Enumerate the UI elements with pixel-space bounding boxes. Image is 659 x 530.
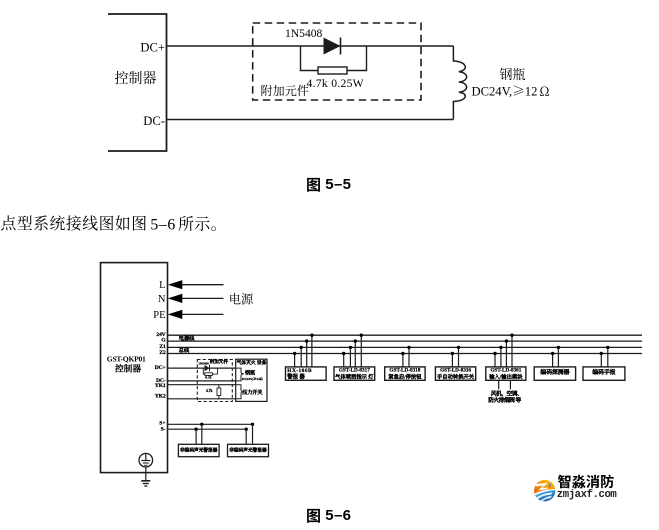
svg-text:YK2: YK2 bbox=[155, 390, 166, 399]
svg-text:DC24V,≥12Ω: DC24V,≥12Ω bbox=[472, 80, 550, 99]
svg-text:控制器: 控制器 bbox=[114, 362, 141, 374]
svg-text:附加元件: 附加元件 bbox=[210, 358, 229, 365]
svg-text:YK1: YK1 bbox=[155, 380, 166, 389]
svg-text:DC+: DC+ bbox=[155, 362, 166, 371]
svg-text:图: 图 bbox=[306, 505, 321, 526]
svg-text:非编码声光警报器: 非编码声光警报器 bbox=[229, 447, 267, 454]
svg-text:DC+: DC+ bbox=[140, 37, 165, 56]
svg-text:附加元件: 附加元件 bbox=[261, 82, 309, 99]
svg-text:紧急启/停按钮: 紧急启/停按钮 bbox=[388, 373, 422, 381]
svg-text:防火排烟阀 等: 防火排烟阀 等 bbox=[488, 395, 521, 404]
svg-text:手自动转换开关: 手自动转换开关 bbox=[437, 373, 475, 381]
svg-text:DC-: DC- bbox=[143, 110, 165, 129]
svg-text:1N5408: 1N5408 bbox=[285, 25, 323, 41]
svg-text:DC24V,≥12Ω: DC24V,≥12Ω bbox=[242, 376, 263, 381]
svg-text:4.7k: 4.7k bbox=[206, 389, 213, 394]
svg-text:编码探测器: 编码探测器 bbox=[539, 367, 569, 376]
svg-text:1N5408: 1N5408 bbox=[198, 361, 209, 366]
svg-text:电源: 电源 bbox=[229, 289, 254, 307]
svg-text:4.7k: 4.7k bbox=[205, 375, 212, 380]
svg-text:气体喷洒指示 灯: 气体喷洒指示 灯 bbox=[335, 373, 374, 381]
svg-text:N: N bbox=[158, 291, 166, 306]
svg-text:气体灭火 设备: 气体灭火 设备 bbox=[237, 359, 267, 366]
svg-text:5–5: 5–5 bbox=[325, 176, 351, 193]
svg-text:输入/输出模块: 输入/输出模块 bbox=[488, 373, 523, 381]
svg-text:电源线: 电源线 bbox=[179, 334, 195, 342]
svg-text:5–6: 5–6 bbox=[325, 507, 351, 524]
svg-text:警报 器: 警报 器 bbox=[287, 373, 305, 381]
svg-text:非编码声光警报器: 非编码声光警报器 bbox=[180, 447, 218, 454]
svg-text:4.7k0.25W: 4.7k0.25W bbox=[307, 75, 364, 91]
svg-text:zmjaxf.com: zmjaxf.com bbox=[557, 489, 617, 501]
svg-text:控制器: 控制器 bbox=[115, 68, 157, 88]
svg-text:点型系统接线图如图5–6所示。: 点型系统接线图如图5–6所示。 bbox=[1, 211, 228, 234]
svg-text:压力开关: 压力开关 bbox=[242, 389, 262, 396]
svg-text:PE: PE bbox=[153, 307, 165, 322]
svg-text:编码手报: 编码手报 bbox=[591, 367, 615, 376]
svg-text:Z2: Z2 bbox=[159, 347, 166, 356]
svg-text:S-: S- bbox=[161, 425, 166, 433]
svg-text:总线: 总线 bbox=[179, 346, 190, 354]
svg-text:图: 图 bbox=[306, 174, 321, 195]
